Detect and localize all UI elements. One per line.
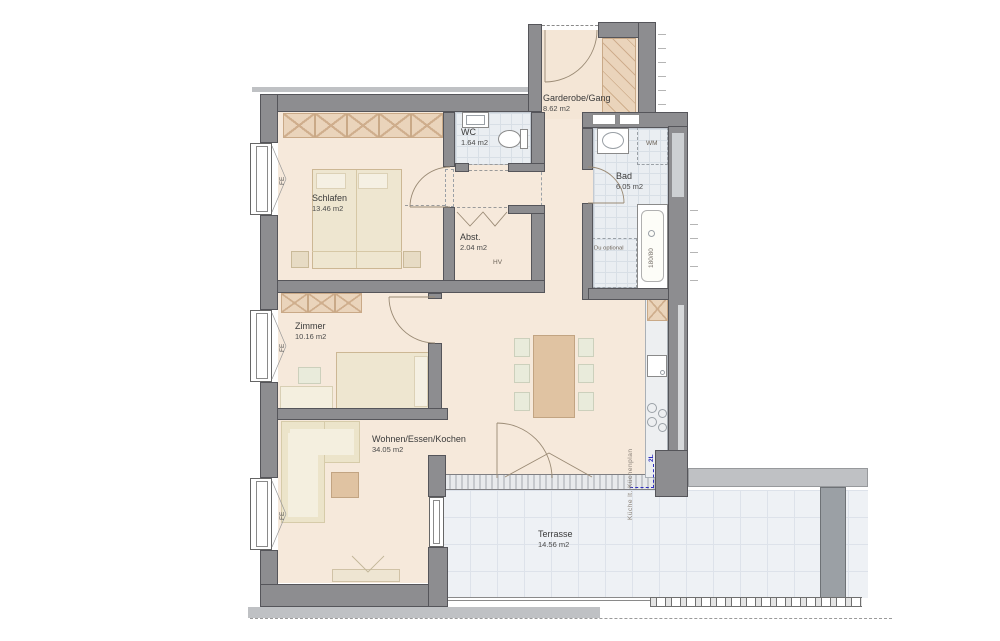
nightstand (291, 251, 309, 268)
room-label-zimmer: Zimmer 10.16 m2 (295, 321, 326, 342)
sink-drain (660, 370, 665, 375)
wall (260, 215, 278, 310)
room-area: 14.56 m2 (538, 540, 573, 549)
wardrobe-section (347, 113, 379, 138)
wall (260, 94, 542, 112)
kitchen-cabinet (647, 297, 668, 321)
wardrobe-section (315, 113, 347, 138)
kitchen-note-label: Küche lt. Küchenplan (628, 420, 635, 520)
pillow (316, 173, 346, 189)
floor-terrace (443, 490, 868, 598)
coffee-table (331, 472, 359, 498)
electric-mark-label: 2L (649, 454, 656, 462)
window-frame (433, 500, 440, 544)
room-name: Zimmer (295, 321, 326, 332)
wall (655, 450, 688, 497)
room-name: Terrasse (538, 529, 573, 540)
site-boundary-dashed (250, 618, 892, 619)
distribution-board-label: HV (493, 260, 502, 267)
terrace-pillar (820, 487, 846, 598)
wc-door-dashed (469, 164, 508, 165)
dining-chair (578, 392, 594, 411)
tv-sideboard (332, 569, 400, 582)
wall (252, 87, 542, 92)
wall (508, 163, 545, 172)
facade-ticks (658, 34, 666, 112)
wall (428, 343, 442, 410)
wall (260, 382, 278, 478)
facade-ticks (690, 210, 698, 288)
electric-dashed-line (653, 464, 654, 488)
window-fe-label: FE (280, 344, 287, 352)
room-name: Schlafen (312, 193, 347, 204)
terrace-glass-front (443, 474, 655, 490)
wardrobe-section (335, 293, 362, 313)
bathtub-drain (648, 230, 655, 237)
wall-inner-face (678, 305, 684, 453)
room-name: WC (461, 127, 488, 138)
terrace-edge-line (443, 597, 650, 601)
room-label-bad: Bad 6.05 m2 (616, 171, 643, 192)
bathtub-size-label: 180/80 (649, 248, 656, 268)
dining-chair (514, 392, 530, 411)
wall-exterior-band (248, 607, 600, 618)
room-name: Abst. (460, 232, 487, 243)
room-area: 13.46 m2 (312, 204, 347, 213)
schlafen-door-pocket (445, 169, 454, 207)
toilet-tank (520, 129, 528, 149)
wall (260, 94, 278, 143)
wall (443, 207, 455, 283)
room-label-wohnen: Wohnen/Essen/Kochen 34.05 m2 (372, 434, 466, 455)
window-frame (256, 481, 268, 547)
wall-neighbor-band (688, 468, 868, 487)
wall (638, 22, 656, 118)
cooktop-burner (647, 403, 657, 413)
nightstand (403, 251, 421, 268)
wall (260, 408, 448, 420)
room-area: 8.62 m2 (543, 104, 611, 113)
room-label-terrasse: Terrasse 14.56 m2 (538, 529, 573, 550)
toilet-bowl (498, 130, 521, 148)
window-fe-label: FE (280, 177, 287, 185)
wall (582, 128, 593, 170)
wardrobe-section (283, 113, 315, 138)
wall (455, 163, 469, 172)
room-area: 1.64 m2 (461, 138, 488, 147)
room-label-garderobe: Garderobe/Gang 8.62 m2 (543, 93, 611, 114)
wall (582, 203, 593, 300)
dining-table (533, 335, 575, 418)
bath-sink-basin (602, 132, 624, 149)
room-label-abst: Abst. 2.04 m2 (460, 232, 487, 253)
dining-chair (514, 338, 530, 357)
window-frame (256, 146, 268, 212)
desk-chair (298, 367, 321, 384)
wall-niche (619, 114, 640, 125)
wall (528, 24, 542, 112)
floor-plan: WM 180/80 Du optional (0, 0, 1000, 641)
wall (508, 205, 545, 214)
bathtub-inner (641, 210, 664, 282)
wall (428, 547, 448, 607)
door-projection-dashed (405, 205, 445, 206)
wall (260, 280, 545, 293)
pillow (414, 356, 428, 407)
room-name: Garderobe/Gang (543, 93, 611, 104)
room-area: 34.05 m2 (372, 445, 466, 454)
wall (428, 293, 442, 299)
bed-divider (356, 170, 357, 268)
shaft (672, 133, 684, 197)
wall (443, 112, 455, 167)
window-frame (256, 313, 268, 379)
cooktop-burner (658, 409, 667, 418)
shower-note: Du optional (594, 246, 624, 252)
washing-machine-label: WM (646, 141, 658, 148)
wc-door-dashed (469, 170, 508, 171)
cooktop-burner (658, 423, 667, 432)
room-label-wc: WC 1.64 m2 (461, 127, 488, 148)
room-area: 6.05 m2 (616, 182, 643, 191)
wall-niche (592, 114, 616, 125)
desk (280, 386, 333, 409)
wardrobe-section (308, 293, 335, 313)
room-name: Bad (616, 171, 643, 182)
wall (428, 455, 446, 497)
terrace-railing (650, 597, 862, 607)
sofa-cushion (288, 433, 318, 517)
room-name: Wohnen/Essen/Kochen (372, 434, 466, 445)
abst-opening-dashed (457, 207, 507, 208)
wc-sink-basin (466, 115, 485, 125)
room-area: 10.16 m2 (295, 332, 326, 341)
dining-chair (578, 364, 594, 383)
pillow (358, 173, 388, 189)
entrance-opening-dashed (542, 25, 598, 26)
room-label-schlafen: Schlafen 13.46 m2 (312, 193, 347, 214)
wall (260, 584, 448, 607)
bed-foot-line (312, 251, 402, 252)
window-fe-label: FE (280, 512, 287, 520)
wardrobe-section (379, 113, 411, 138)
cooktop-burner (647, 417, 657, 427)
room-area: 2.04 m2 (460, 243, 487, 252)
wardrobe-section (281, 293, 308, 313)
dining-chair (514, 364, 530, 383)
wardrobe-section (411, 113, 443, 138)
dining-chair (578, 338, 594, 357)
